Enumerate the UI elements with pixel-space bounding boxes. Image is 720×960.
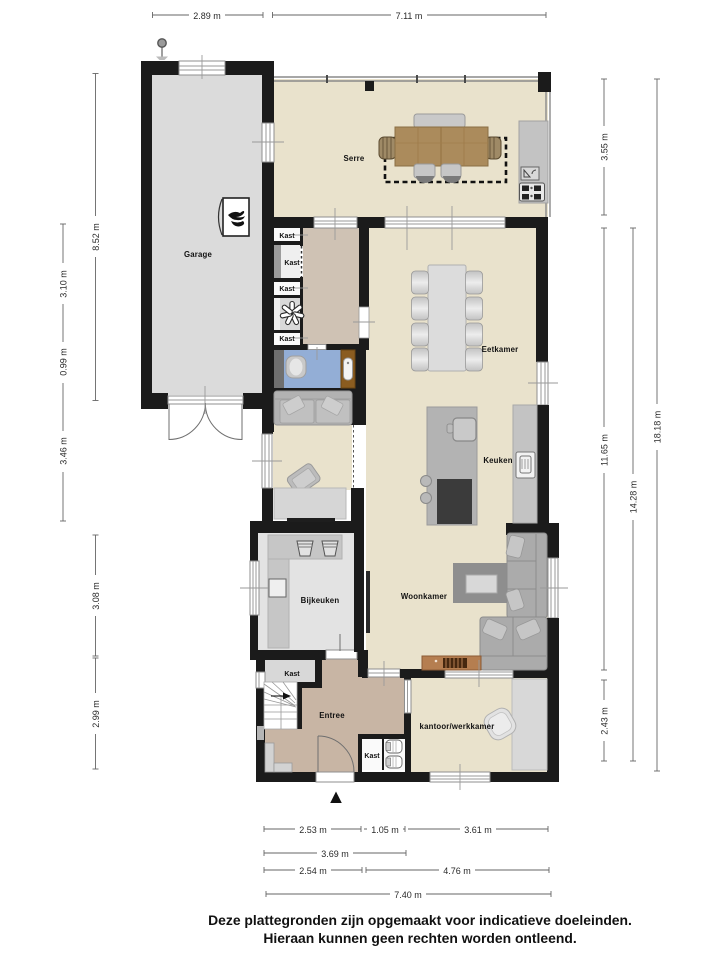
svg-text:Entree: Entree xyxy=(319,711,345,720)
svg-text:Kast: Kast xyxy=(279,233,295,240)
svg-text:Hieraan kunnen geen rechten wo: Hieraan kunnen geen rechten worden ontle… xyxy=(263,930,576,946)
svg-text:3.08 m: 3.08 m xyxy=(91,582,101,610)
svg-text:7.11 m: 7.11 m xyxy=(396,11,423,21)
svg-text:Bijkeuken: Bijkeuken xyxy=(301,596,340,605)
svg-text:Kast: Kast xyxy=(364,753,380,760)
svg-text:Kast: Kast xyxy=(284,671,300,678)
svg-text:Garage: Garage xyxy=(184,250,213,259)
svg-text:2.99 m: 2.99 m xyxy=(91,700,101,728)
svg-text:4.76 m: 4.76 m xyxy=(443,866,471,876)
svg-text:1.05 m: 1.05 m xyxy=(371,825,399,835)
svg-text:Kast: Kast xyxy=(284,260,300,267)
svg-text:2.54 m: 2.54 m xyxy=(299,866,327,876)
svg-text:2.43 m: 2.43 m xyxy=(600,707,610,735)
svg-text:3.69 m: 3.69 m xyxy=(321,849,349,859)
svg-text:Eetkamer: Eetkamer xyxy=(482,345,519,354)
svg-text:0.99 m: 0.99 m xyxy=(59,348,69,376)
svg-text:3.10 m: 3.10 m xyxy=(59,270,69,298)
svg-text:Kast: Kast xyxy=(279,336,295,343)
svg-text:Serre: Serre xyxy=(344,154,365,163)
svg-text:18.18 m: 18.18 m xyxy=(653,411,663,444)
svg-text:3.61 m: 3.61 m xyxy=(464,825,492,835)
svg-text:Woonkamer: Woonkamer xyxy=(401,592,447,601)
svg-text:Deze plattegronden zijn opgema: Deze plattegronden zijn opgemaakt voor i… xyxy=(208,912,632,928)
svg-text:3.46 m: 3.46 m xyxy=(59,437,69,465)
svg-text:11.65 m: 11.65 m xyxy=(600,434,610,466)
svg-text:Kast: Kast xyxy=(279,286,295,293)
svg-text:7.40 m: 7.40 m xyxy=(394,890,422,900)
svg-text:kantoor/werkkamer: kantoor/werkkamer xyxy=(420,722,495,731)
svg-text:2.53 m: 2.53 m xyxy=(299,825,327,835)
svg-text:2.89 m: 2.89 m xyxy=(193,11,221,21)
svg-text:8.52 m: 8.52 m xyxy=(91,223,101,251)
svg-text:Keuken: Keuken xyxy=(483,456,512,465)
svg-text:3.55 m: 3.55 m xyxy=(600,133,610,161)
svg-text:14.28 m: 14.28 m xyxy=(629,481,639,514)
